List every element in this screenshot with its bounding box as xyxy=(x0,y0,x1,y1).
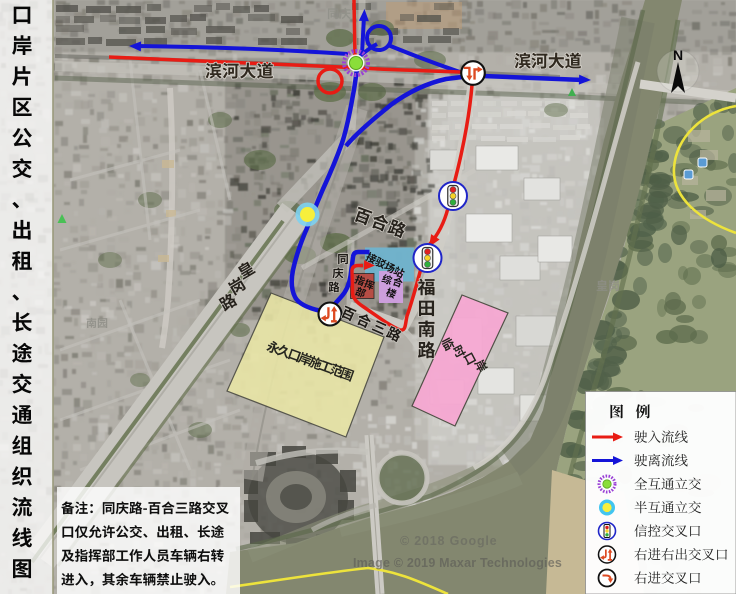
svg-text:N: N xyxy=(673,47,683,63)
svg-text:Image © 2019 Maxar Technologie: Image © 2019 Maxar Technologies xyxy=(353,556,562,570)
svg-text:© 2018 Google: © 2018 Google xyxy=(400,534,497,548)
